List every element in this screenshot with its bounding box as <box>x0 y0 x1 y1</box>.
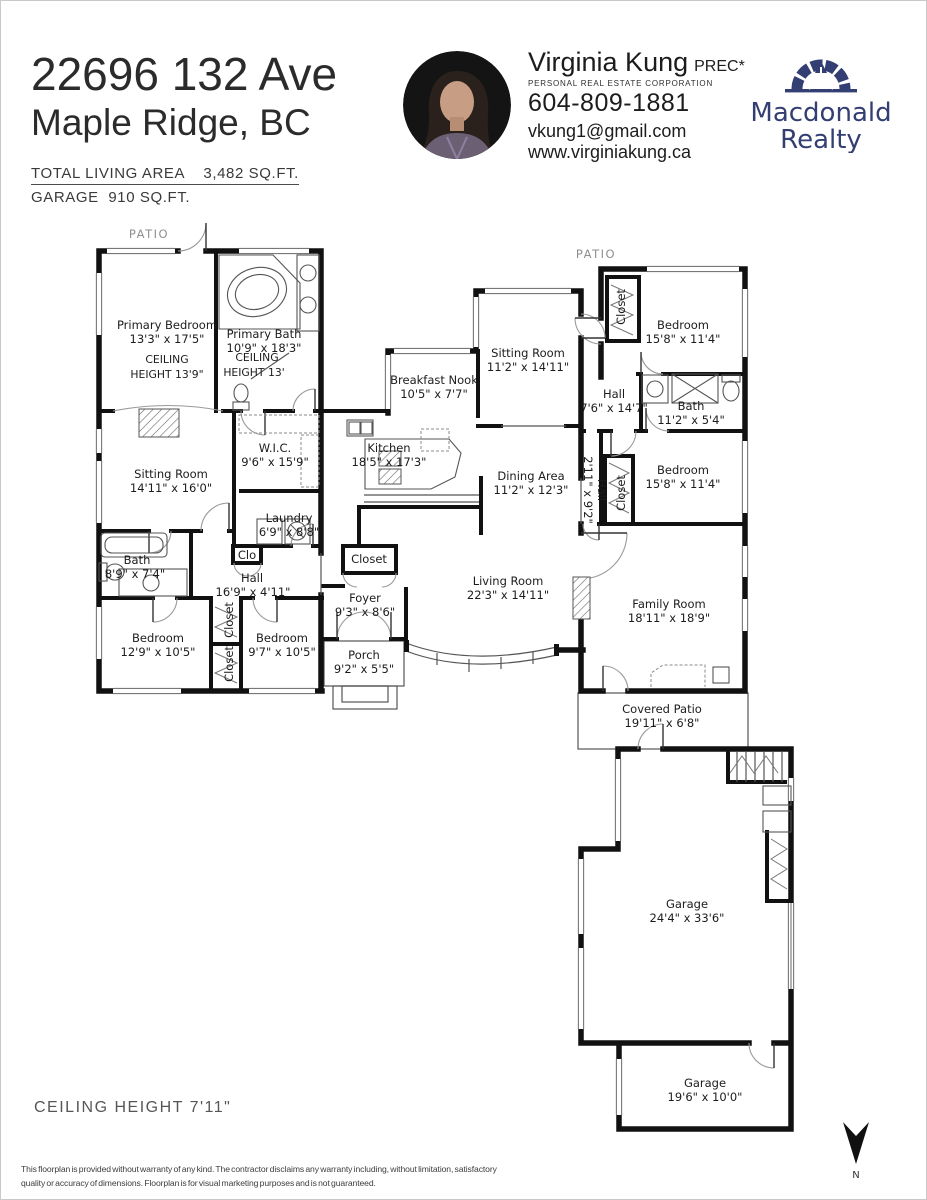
patio-label-right: PATIO <box>576 247 616 261</box>
agent-info: Virginia KungPREC* PERSONAL REAL ESTATE … <box>528 49 745 161</box>
room-dims: 7'6" x 14'7" <box>580 401 648 415</box>
floorplan-flyer: PATIO PATIO Primary Bedroom 13'3" x 17'5… <box>0 0 927 1200</box>
room-label: Bath <box>678 399 705 413</box>
room-dims: 18'5" x 17'3" <box>352 455 427 469</box>
room-labels: PATIO PATIO Primary Bedroom 13'3" x 17'5… <box>105 227 743 1104</box>
room-dims: 11'2" x 12'3" <box>494 483 569 497</box>
room-label: Bedroom <box>657 463 709 477</box>
room-dims: 15'8" x 11'4" <box>646 332 721 346</box>
closet-label: Clo <box>238 548 256 562</box>
room-label: Bedroom <box>256 631 308 645</box>
agent-name: Virginia Kung <box>528 47 688 77</box>
brokerage-logo: Macdonald Realty <box>741 45 901 158</box>
ceiling-note: CEILING <box>235 351 278 364</box>
agent-website: www.virginiakung.ca <box>528 143 745 161</box>
footer-ceiling-note: CEILING HEIGHT 7'11" <box>34 1099 231 1117</box>
room-dims: 14'11" x 16'0" <box>130 481 212 495</box>
room-dims: 12'9" x 10'5" <box>121 645 196 659</box>
room-dims: 24'4" x 33'6" <box>650 911 725 925</box>
room-label: Covered Patio <box>622 702 702 716</box>
room-dims: 8'9" x 7'4" <box>105 567 165 581</box>
room-label: Dining Area <box>497 469 564 483</box>
thin-structures <box>324 640 748 749</box>
room-dims: 15'8" x 11'4" <box>646 477 721 491</box>
room-label: Garage <box>666 897 708 911</box>
room-dims: 9'6" x 15'9" <box>241 455 309 469</box>
room-dims: 11'2" x 5'4" <box>657 413 725 427</box>
room-dims: 9'7" x 10'5" <box>248 645 316 659</box>
room-label: Hall <box>241 571 263 585</box>
room-label: Foyer <box>349 591 381 605</box>
hall-dims-vertical: 2'11" x 9'2" <box>581 456 595 524</box>
room-label: Sitting Room <box>134 467 208 481</box>
room-label: Family Room <box>632 597 705 611</box>
ceiling-note: HEIGHT 13'9" <box>130 368 203 381</box>
disclaimer-line1: This floorplan is provided without warra… <box>21 1163 916 1177</box>
room-label: W.I.C. <box>259 441 291 455</box>
disclaimer-line2: quality or accuracy of dimensions. Floor… <box>21 1177 916 1191</box>
agent-subtitle: PERSONAL REAL ESTATE CORPORATION <box>528 80 745 88</box>
agent-email: vkung1@gmail.com <box>528 122 745 140</box>
disclaimer: This floorplan is provided without warra… <box>21 1163 916 1191</box>
closet-label: Closet <box>222 602 236 638</box>
room-label: Porch <box>348 648 380 662</box>
room-label: Breakfast Nook <box>390 373 478 387</box>
room-label: Bedroom <box>132 631 184 645</box>
room-label: Living Room <box>473 574 544 588</box>
closet-label: Closet <box>614 475 628 511</box>
room-dims: 6'9" x 8'8" <box>259 525 319 539</box>
patio-label-left: PATIO <box>129 227 169 241</box>
brokerage-name-line2: Realty <box>780 125 862 153</box>
address-line2: Maple Ridge, BC <box>31 104 311 141</box>
room-dims: 13'3" x 17'5" <box>130 332 205 346</box>
address-line1: 22696 132 Ave <box>31 51 337 97</box>
closet-label: Closet <box>614 289 628 325</box>
agent-avatar-icon <box>403 51 511 159</box>
room-label: Sitting Room <box>491 346 565 360</box>
room-dims: 18'11" x 18'9" <box>628 611 710 625</box>
garage-area: GARAGE 910 SQ.FT. <box>31 189 190 206</box>
room-label: Primary Bath <box>227 327 302 341</box>
room-label: Bath <box>124 553 151 567</box>
room-dims: 19'6" x 10'0" <box>668 1090 743 1104</box>
total-living-area: TOTAL LIVING AREA 3,482 SQ.FT. <box>31 165 299 185</box>
hall-label-vertical: Hall <box>595 479 609 501</box>
room-dims: 9'3" x 8'6" <box>335 605 395 619</box>
room-dims: 22'3" x 14'11" <box>467 588 549 602</box>
agent-phone: 604-809-1881 <box>528 91 745 116</box>
closet-label: Closet <box>222 646 236 682</box>
ceiling-note: HEIGHT 13' <box>223 366 284 379</box>
room-dims: 16'9" x 4'11" <box>216 585 291 599</box>
room-label: Primary Bedroom <box>117 318 217 332</box>
room-label: Laundry <box>266 511 313 525</box>
agent-designation: PREC* <box>694 58 745 75</box>
brokerage-logo-icon: Macdonald Realty <box>741 45 901 153</box>
room-label: Bedroom <box>657 318 709 332</box>
agent-photo <box>403 51 511 159</box>
room-dims: 11'2" x 14'11" <box>487 360 569 374</box>
room-label: Hall <box>603 387 625 401</box>
room-dims: 19'11" x 6'8" <box>625 716 700 730</box>
room-dims: 10'5" x 7'7" <box>400 387 468 401</box>
brokerage-name-line1: Macdonald <box>750 98 891 128</box>
ceiling-note: CEILING <box>145 353 188 366</box>
room-dims: 9'2" x 5'5" <box>334 662 394 676</box>
closet-label: Closet <box>351 552 387 566</box>
room-label: Garage <box>684 1076 726 1090</box>
room-label: Kitchen <box>367 441 410 455</box>
